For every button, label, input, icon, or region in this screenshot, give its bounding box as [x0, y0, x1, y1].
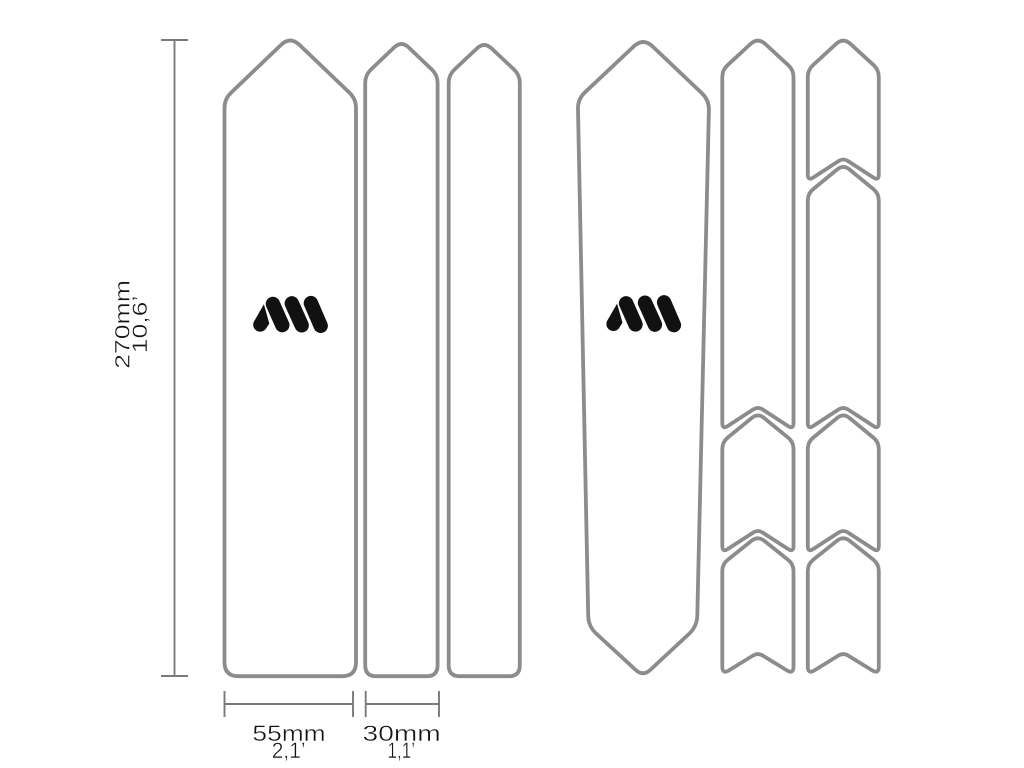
svg-text:2,1’: 2,1’	[272, 737, 306, 763]
svg-text:1,1’: 1,1’	[388, 739, 416, 764]
svg-text:10,6’: 10,6’	[128, 296, 152, 354]
